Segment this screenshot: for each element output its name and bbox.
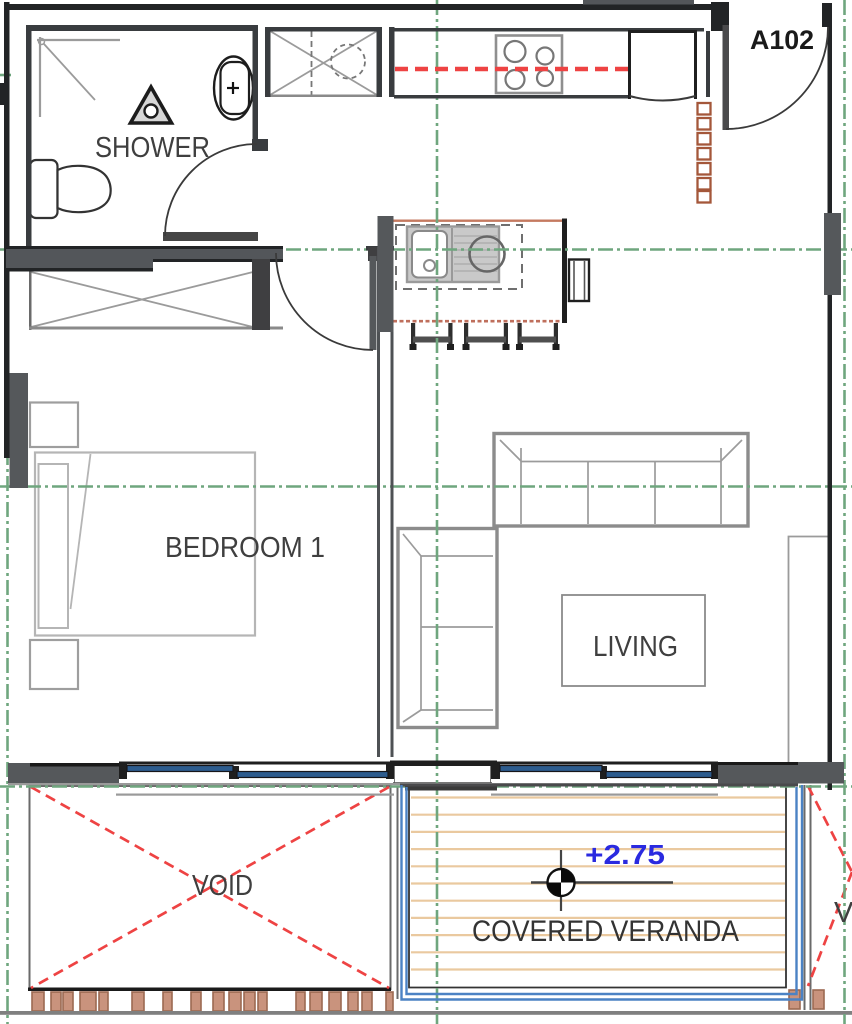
- svg-text:BEDROOM 1: BEDROOM 1: [165, 532, 325, 564]
- svg-text:V: V: [834, 897, 852, 929]
- svg-text:VOID: VOID: [192, 870, 253, 902]
- svg-text:+2.75: +2.75: [585, 839, 665, 870]
- svg-text:SHOWER: SHOWER: [95, 132, 210, 164]
- svg-text:COVERED VERANDA: COVERED VERANDA: [472, 915, 739, 948]
- svg-text:LIVING: LIVING: [593, 631, 678, 663]
- svg-text:A102: A102: [750, 25, 814, 55]
